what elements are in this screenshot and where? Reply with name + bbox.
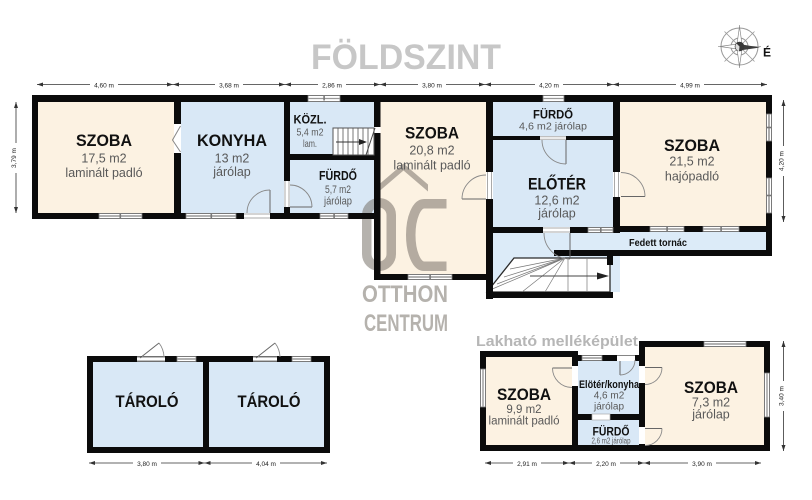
- svg-text:Fedett tornác: Fedett tornác: [629, 238, 687, 249]
- svg-text:4,99 m: 4,99 m: [680, 83, 700, 90]
- svg-text:CENTRUM: CENTRUM: [364, 310, 448, 337]
- svg-text:5,7 m2: 5,7 m2: [325, 184, 351, 196]
- svg-text:TÁROLÓ: TÁROLÓ: [238, 392, 301, 411]
- svg-text:járólap: járólap: [593, 402, 624, 413]
- svg-text:SZOBA: SZOBA: [76, 131, 132, 150]
- svg-text:SZOBA: SZOBA: [684, 378, 738, 397]
- svg-text:FÜRDŐ: FÜRDŐ: [319, 168, 357, 183]
- svg-text:3,80 m: 3,80 m: [137, 461, 157, 468]
- svg-text:17,5 m2: 17,5 m2: [81, 152, 126, 166]
- svg-text:laminált padló: laminált padló: [65, 166, 142, 180]
- svg-text:járólap: járólap: [323, 196, 352, 208]
- svg-text:Lakható melléképület: Lakható melléképület: [476, 333, 638, 350]
- svg-text:Elötér/konyha: Elötér/konyha: [579, 379, 640, 391]
- svg-text:TÁROLÓ: TÁROLÓ: [116, 392, 179, 411]
- svg-text:járólap: járólap: [691, 408, 730, 422]
- svg-text:KÖZL.: KÖZL.: [294, 112, 327, 127]
- svg-text:3,79 m: 3,79 m: [11, 148, 18, 168]
- svg-text:2,91 m: 2,91 m: [517, 461, 537, 468]
- svg-text:laminált padló: laminált padló: [393, 159, 470, 173]
- svg-text:2,6 m2 járólap: 2,6 m2 járólap: [592, 437, 631, 446]
- svg-text:13 m2: 13 m2: [215, 152, 250, 166]
- svg-text:3,68 m: 3,68 m: [219, 83, 239, 90]
- svg-text:lam.: lam.: [303, 138, 317, 150]
- svg-text:ELŐTÉR: ELŐTÉR: [528, 175, 586, 194]
- svg-text:5,4 m2: 5,4 m2: [297, 127, 324, 139]
- svg-text:9,9 m2: 9,9 m2: [506, 404, 541, 416]
- svg-text:12,6 m2: 12,6 m2: [534, 194, 579, 208]
- svg-text:SZOBA: SZOBA: [664, 136, 720, 155]
- svg-text:4,60 m: 4,60 m: [94, 83, 114, 90]
- svg-text:OTTHON: OTTHON: [362, 281, 448, 308]
- svg-text:KONYHA: KONYHA: [197, 131, 267, 150]
- svg-text:4,04 m: 4,04 m: [256, 461, 276, 468]
- svg-text:2,86 m: 2,86 m: [322, 83, 342, 90]
- svg-text:20,8 m2: 20,8 m2: [409, 144, 454, 158]
- svg-text:4,6 m2: 4,6 m2: [594, 391, 625, 402]
- svg-text:4,6 m2 járólap: 4,6 m2 járólap: [519, 122, 587, 133]
- svg-text:FÖLDSZINT: FÖLDSZINT: [311, 38, 501, 77]
- svg-text:járólap: járólap: [537, 207, 576, 221]
- svg-text:3,80 m: 3,80 m: [422, 83, 442, 90]
- svg-text:FÜRDŐ: FÜRDŐ: [533, 107, 573, 122]
- svg-text:SZOBA: SZOBA: [497, 385, 551, 404]
- svg-text:járólap: járólap: [212, 165, 251, 179]
- svg-text:laminált padló: laminált padló: [489, 416, 560, 428]
- svg-text:21,5 m2: 21,5 m2: [669, 155, 714, 169]
- svg-text:É: É: [763, 45, 771, 60]
- svg-text:3,90 m: 3,90 m: [692, 461, 712, 468]
- svg-text:4,20 m: 4,20 m: [539, 83, 559, 90]
- svg-text:hajópadló: hajópadló: [665, 170, 719, 184]
- svg-text:2,20 m: 2,20 m: [596, 461, 616, 468]
- svg-text:4,20 m: 4,20 m: [779, 151, 786, 171]
- svg-text:3,40 m: 3,40 m: [779, 386, 786, 406]
- svg-text:SZOBA: SZOBA: [405, 124, 459, 143]
